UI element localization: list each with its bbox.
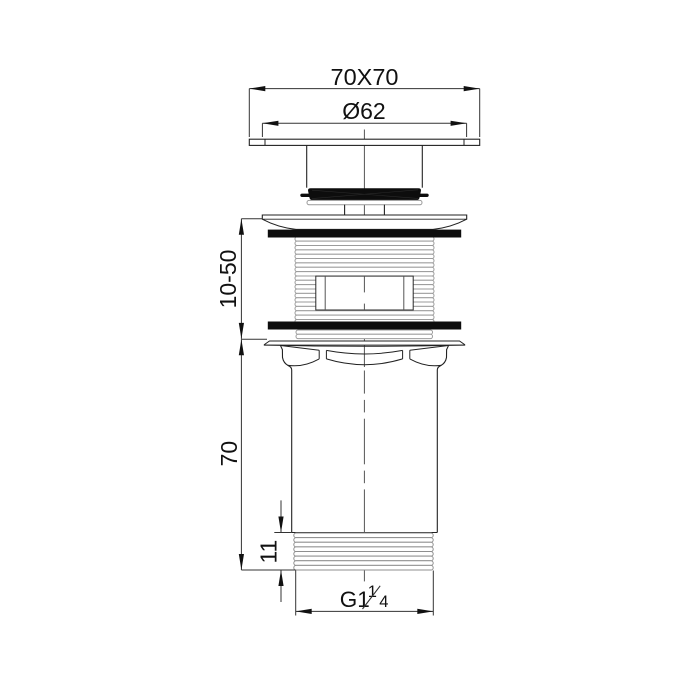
svg-text:4: 4 bbox=[379, 593, 388, 611]
svg-text:70: 70 bbox=[216, 441, 242, 467]
svg-text:G1: G1 bbox=[340, 587, 370, 612]
svg-text:10-50: 10-50 bbox=[215, 250, 241, 309]
svg-text:70X70: 70X70 bbox=[331, 64, 399, 90]
svg-text:Ø62: Ø62 bbox=[342, 98, 385, 124]
svg-text:11: 11 bbox=[255, 540, 281, 564]
